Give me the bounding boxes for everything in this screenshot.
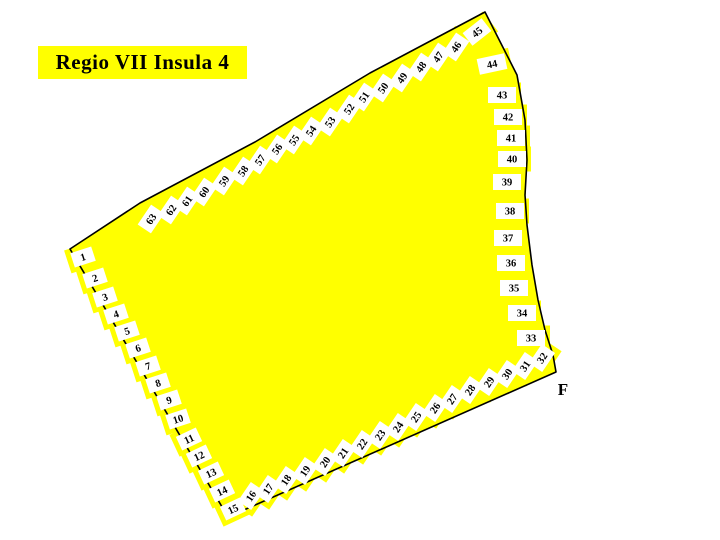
entrance-number[interactable]: 33	[526, 334, 537, 345]
map-title: Regio VII Insula 4	[38, 46, 247, 79]
entrance-number[interactable]: 42	[503, 113, 514, 124]
entrance-number[interactable]: 36	[506, 259, 517, 270]
entrance-39[interactable]: 39	[493, 174, 521, 190]
entrance-40[interactable]: 40	[498, 151, 526, 167]
entrance-number[interactable]: 40	[507, 155, 518, 166]
entrance-number[interactable]: 39	[502, 178, 513, 189]
entrance-43[interactable]: 43	[488, 87, 516, 103]
entrance-number[interactable]: 41	[506, 134, 517, 145]
entrance-42[interactable]: 42	[494, 109, 522, 125]
entrance-number[interactable]: 35	[509, 284, 520, 295]
entrance-38[interactable]: 38	[496, 203, 524, 219]
entrance-number[interactable]: 34	[517, 309, 528, 320]
region-label: F	[552, 380, 574, 400]
entrance-34[interactable]: 34	[508, 305, 536, 321]
entrance-35[interactable]: 35	[500, 280, 528, 296]
entrance-37[interactable]: 37	[494, 230, 522, 246]
entrance-number[interactable]: 37	[503, 234, 514, 245]
entrance-33[interactable]: 33	[517, 330, 545, 346]
entrance-36[interactable]: 36	[497, 255, 525, 271]
entrance-number[interactable]: 38	[505, 207, 516, 218]
entrance-41[interactable]: 41	[497, 130, 525, 146]
insula-map: 1234567891011121314151617181920212223242…	[0, 0, 720, 540]
insula-plan-page: Regio VII Insula 4 123456789101112131415…	[0, 0, 720, 540]
entrance-number[interactable]: 43	[497, 91, 508, 102]
